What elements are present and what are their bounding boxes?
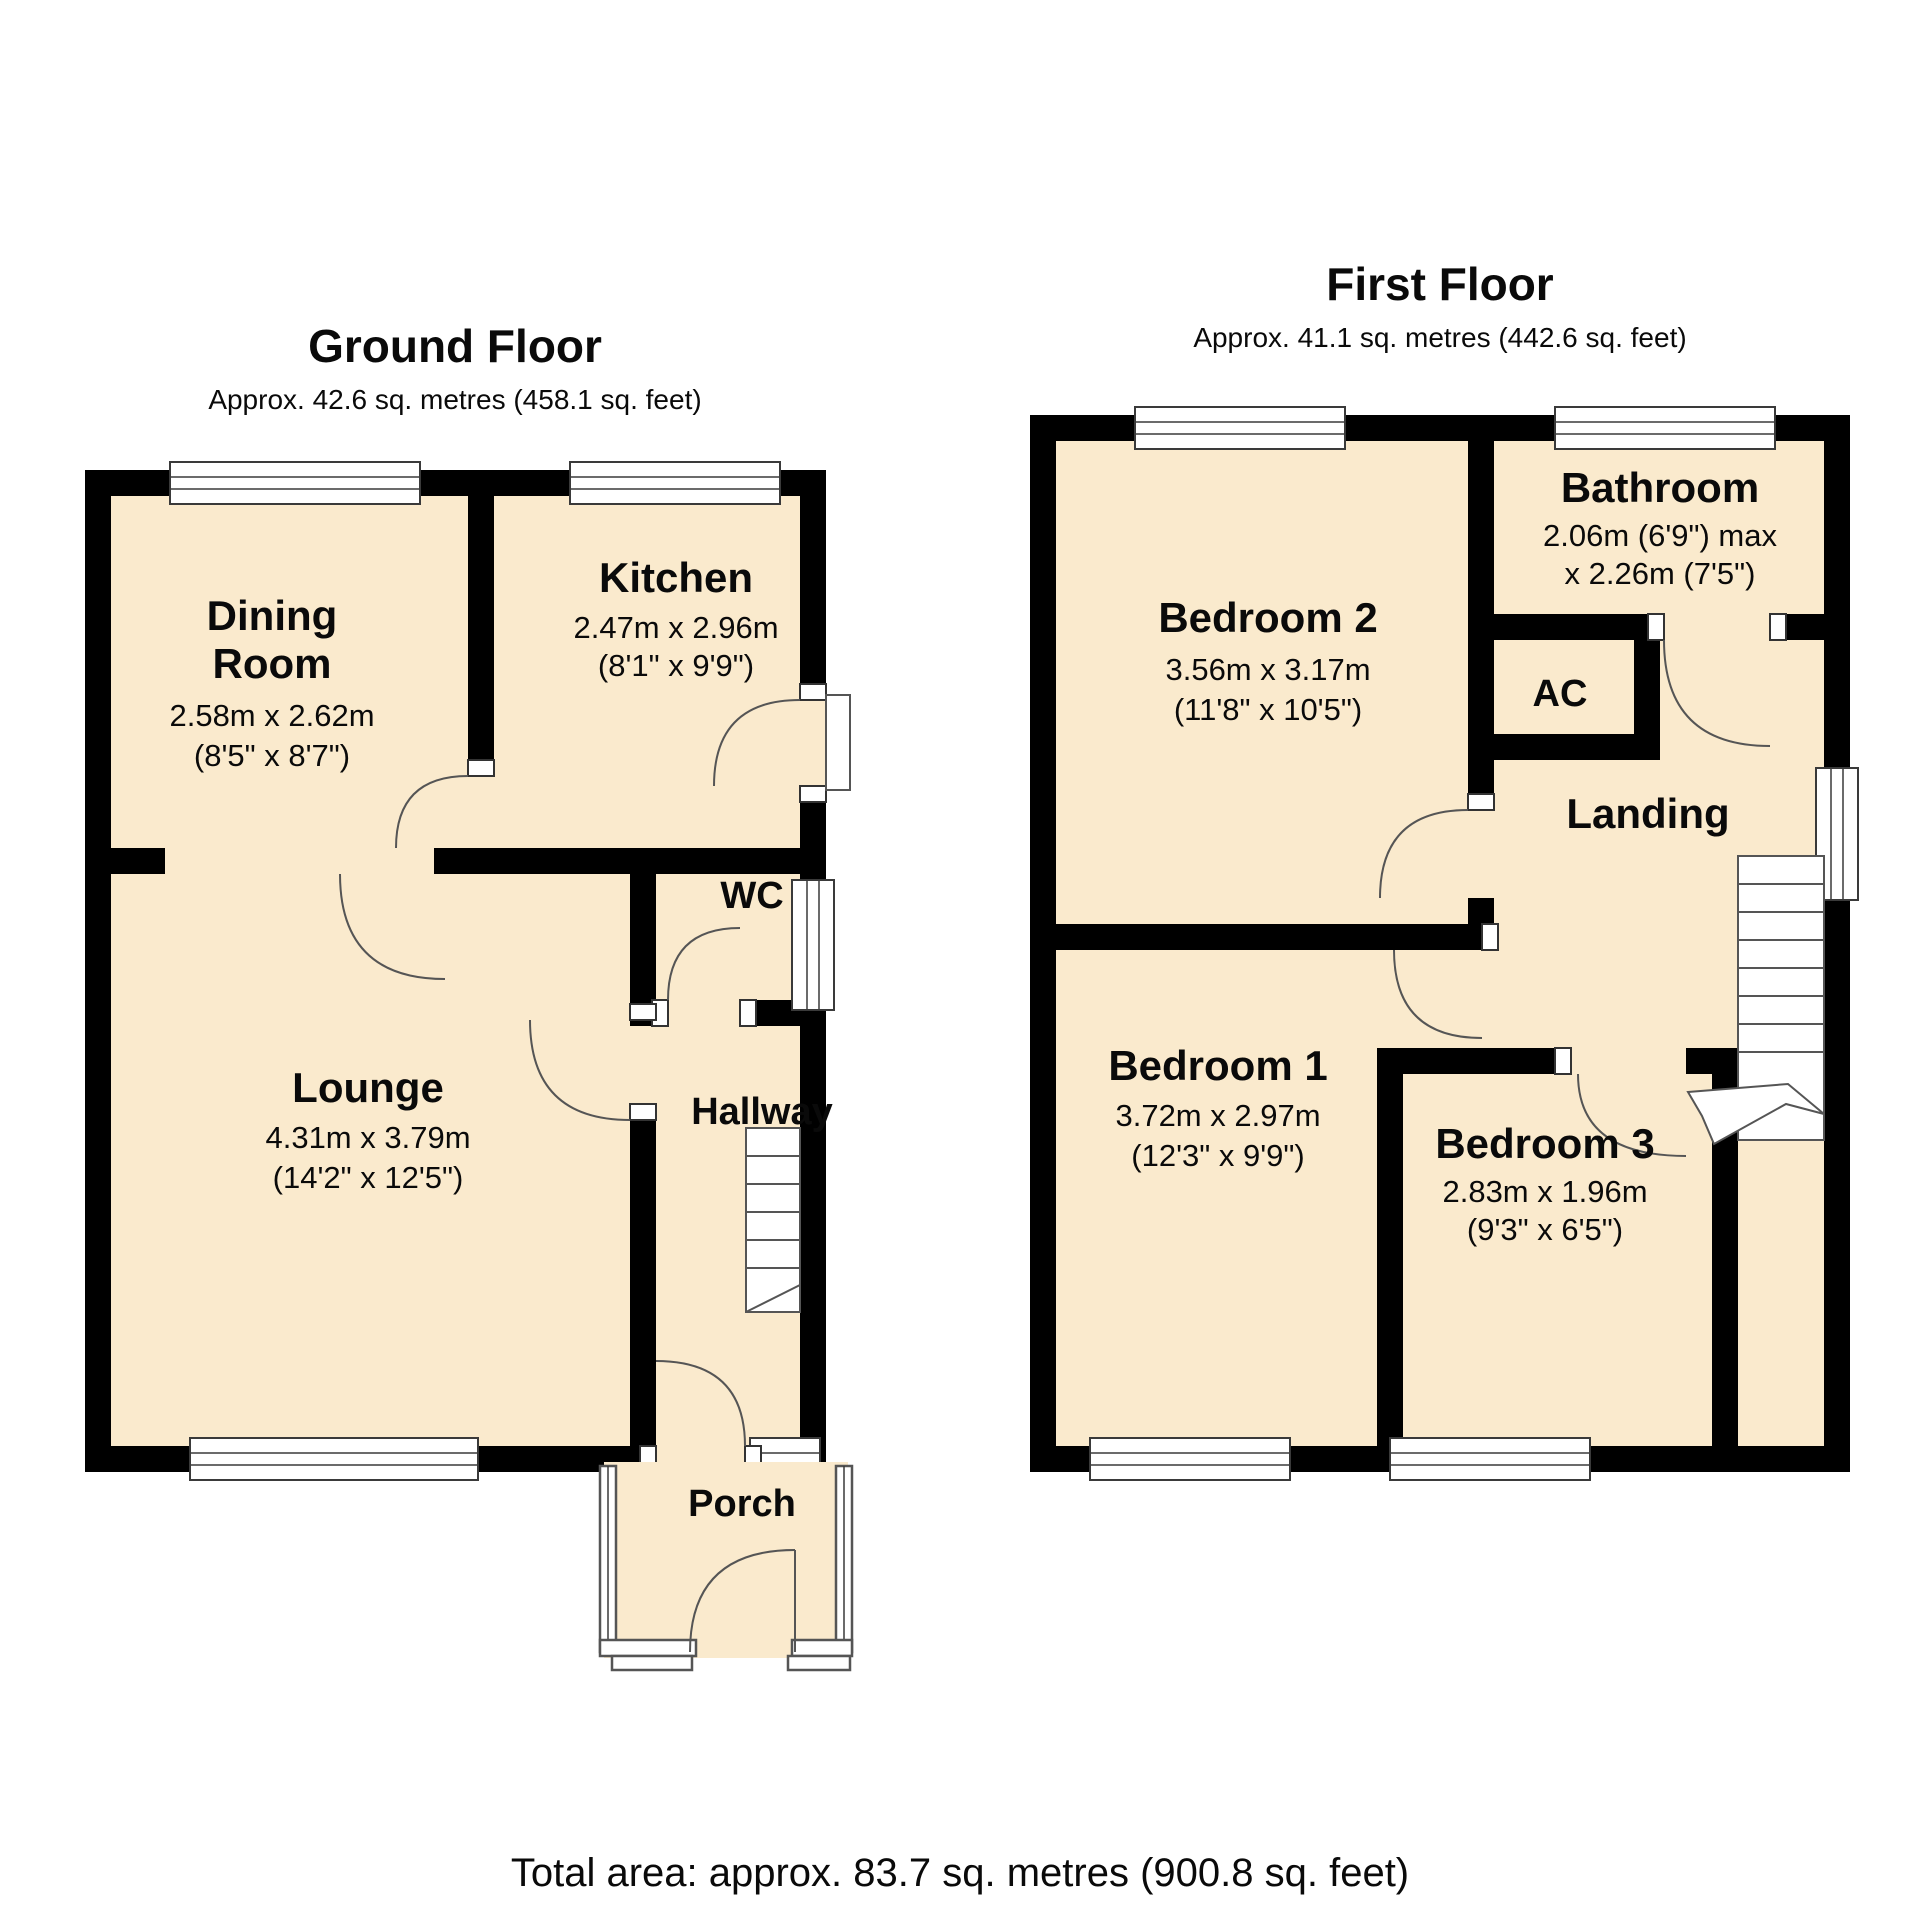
room-label-landing: Landing [1566, 790, 1729, 837]
wall-segment [630, 848, 656, 1020]
door-jamb [630, 1004, 656, 1020]
door-jamb [1482, 924, 1498, 950]
wall-segment [1377, 1048, 1555, 1074]
room-dims-m: 3.72m x 2.97m [1115, 1098, 1320, 1133]
room-label-bedroom2: Bedroom 2 [1158, 594, 1377, 641]
room-label-bedroom1: Bedroom 1 [1108, 1042, 1327, 1089]
wall-segment [1056, 924, 1482, 950]
room-dims-ft: (8'1" x 9'9") [598, 648, 754, 683]
door-leaf [826, 695, 850, 790]
room-dims-ft: (11'8" x 10'5") [1174, 692, 1362, 727]
room-label-lounge: Lounge [292, 1064, 444, 1111]
room-dims-m: 2.47m x 2.96m [573, 610, 778, 645]
window [190, 1438, 478, 1480]
door-jamb [800, 684, 826, 700]
door-jamb [1468, 794, 1494, 810]
first-floor-subtitle: Approx. 41.1 sq. metres (442.6 sq. feet) [1193, 322, 1686, 353]
window [1135, 407, 1345, 449]
room-dims-m: 4.31m x 3.79m [265, 1120, 470, 1155]
window-sill [612, 1656, 692, 1670]
window-sill [788, 1656, 850, 1670]
total-area-text: Total area: approx. 83.7 sq. metres (900… [511, 1851, 1409, 1895]
window [792, 880, 834, 1010]
floorplan-canvas: Ground Floor Approx. 42.6 sq. metres (45… [0, 0, 1920, 1920]
first-floor-plan: First Floor Approx. 41.1 sq. metres (442… [1030, 258, 1858, 1480]
wall-segment [1634, 640, 1660, 734]
window [170, 462, 420, 504]
room-dims-ft: (8'5" x 8'7") [194, 738, 350, 773]
room-label-wc: WC [720, 875, 783, 917]
room-dims-ft: x 2.26m (7'5") [1565, 556, 1756, 591]
wall-segment [1030, 415, 1056, 1472]
room-dims-ft: (14'2" x 12'5") [273, 1160, 464, 1195]
staircase-ground [746, 1128, 800, 1312]
room-label-bathroom: Bathroom [1561, 464, 1759, 511]
door-jamb [468, 760, 494, 776]
ground-floor-plan: Ground Floor Approx. 42.6 sq. metres (45… [85, 320, 852, 1670]
wall-segment [85, 470, 111, 1472]
first-floor-title: First Floor [1326, 258, 1554, 310]
room-label-ac: AC [1533, 673, 1588, 715]
door-jamb [1770, 614, 1786, 640]
wall-segment [800, 470, 826, 700]
room-dims-m: 2.58m x 2.62m [169, 698, 374, 733]
window [570, 462, 780, 504]
window [1390, 1438, 1590, 1480]
room-dims-m: 3.56m x 3.17m [1165, 652, 1370, 687]
room-dims-m: 2.06m (6'9") max [1543, 518, 1777, 553]
room-label-bedroom3: Bedroom 3 [1435, 1120, 1654, 1167]
door-jamb [630, 1104, 656, 1120]
door-jamb [1555, 1048, 1571, 1074]
window [1090, 1438, 1290, 1480]
door-jamb [740, 1000, 756, 1026]
wall-segment [468, 496, 494, 760]
room-label-porch: Porch [688, 1483, 796, 1525]
ground-floor-title: Ground Floor [308, 320, 602, 372]
wall-segment [1468, 898, 1494, 924]
window [1555, 407, 1775, 449]
door-jamb [800, 786, 826, 802]
wall-segment [1494, 734, 1660, 760]
wall-segment [1377, 1048, 1403, 1446]
door-jamb [1648, 614, 1664, 640]
room-label-dining: Dining [207, 592, 338, 639]
ground-floor-subtitle: Approx. 42.6 sq. metres (458.1 sq. feet) [208, 384, 701, 415]
window [792, 1640, 852, 1656]
wall-segment [1824, 415, 1850, 1472]
window [600, 1640, 696, 1656]
room-dims-m: 2.83m x 1.96m [1442, 1174, 1647, 1209]
wall-segment [85, 848, 165, 874]
room-dims-ft: (9'3" x 6'5") [1467, 1212, 1623, 1247]
floorplan-page: Ground Floor Approx. 42.6 sq. metres (45… [0, 0, 1920, 1920]
room-label-kitchen: Kitchen [599, 554, 753, 601]
wall-segment [1468, 441, 1494, 794]
room-label-dining-2: Room [213, 640, 332, 687]
wall-segment [1494, 614, 1664, 640]
room-dims-ft: (12'3" x 9'9") [1131, 1138, 1304, 1173]
room-label-hallway: Hallway [691, 1091, 833, 1133]
wall-segment [1686, 1048, 1712, 1074]
wall-segment [630, 1120, 656, 1446]
